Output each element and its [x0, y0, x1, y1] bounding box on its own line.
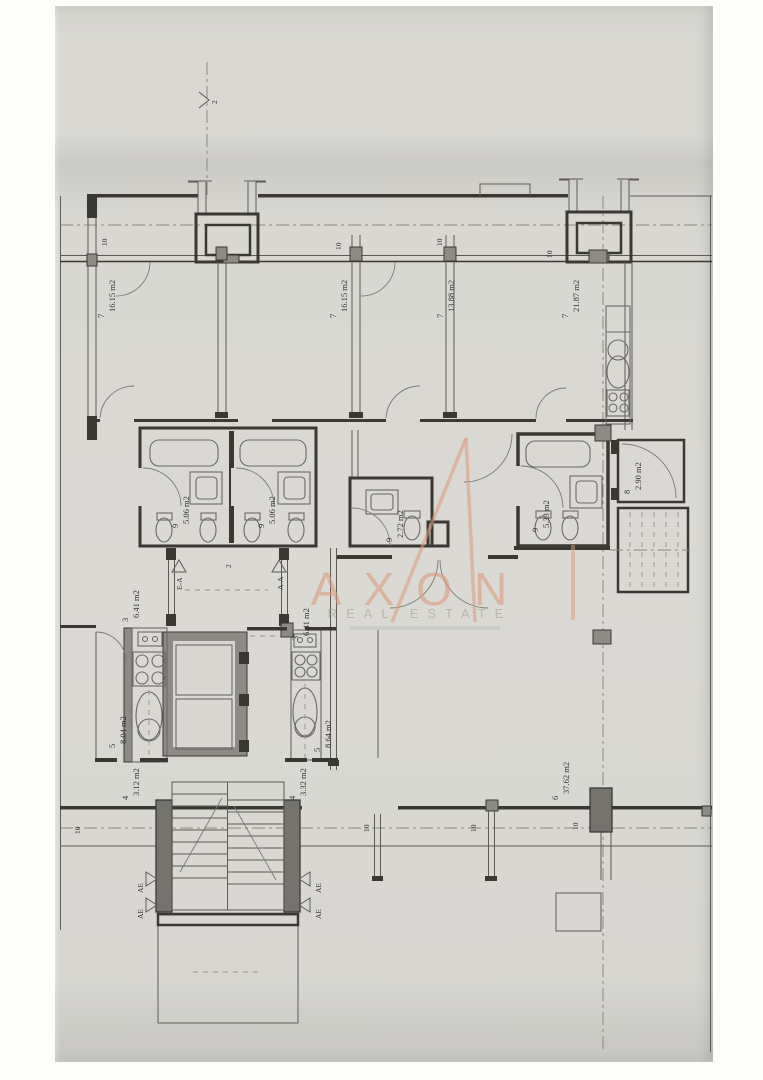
svg-text:9: 9 — [530, 528, 540, 532]
svg-text:9: 9 — [170, 524, 180, 528]
bathroom-right — [514, 425, 611, 550]
svg-text:3.32 m2: 3.32 m2 — [298, 768, 308, 796]
balcony-label-10: 10 — [73, 826, 82, 834]
scanned-floor-plan-sheet: 2 — [0, 0, 763, 1080]
balcony-label-10: 10 — [100, 238, 109, 246]
corridor-number: 2 — [224, 564, 233, 568]
svg-text:8: 8 — [622, 490, 632, 494]
svg-text:13.88 m2: 13.88 m2 — [446, 280, 456, 312]
svg-text:5.33 m2: 5.33 m2 — [541, 500, 551, 528]
room-label-bed3: 713.88 m2 — [435, 280, 456, 318]
svg-text:6.41 m2: 6.41 m2 — [301, 608, 311, 636]
section-marker-triangle — [272, 560, 286, 572]
balcony-label-10: 10 — [571, 822, 580, 830]
entrance-corridor: E-A A-A 2 — [166, 548, 300, 636]
room-label-bath1: 95.06 m2 — [170, 496, 191, 528]
svg-text:9: 9 — [384, 538, 394, 542]
svg-text:9: 9 — [256, 524, 266, 528]
washbasin-icon — [190, 472, 222, 504]
room-label-living: 637.62 m2 — [550, 762, 571, 800]
svg-text:6: 6 — [550, 796, 560, 800]
elevator-shaft — [163, 632, 249, 756]
svg-text:6.41 m2: 6.41 m2 — [131, 590, 141, 618]
room-label-bed2: 716.15 m2 — [328, 280, 349, 318]
bathtub-icon — [240, 440, 306, 466]
bidet-icon — [200, 513, 216, 542]
kitchenette-right-room — [606, 306, 630, 424]
section-label-aa: A-A — [276, 576, 285, 590]
bathrooms-left — [138, 428, 316, 546]
axis-label-2: 2 — [210, 100, 219, 104]
bottom-wall-stubs — [372, 788, 612, 881]
svg-text:3: 3 — [120, 618, 130, 622]
room-label-kitchen1: 58.04 m2 — [107, 716, 128, 748]
section-label-ae: AE — [136, 883, 145, 893]
bidet-icon — [288, 513, 304, 542]
svg-text:8.04 m2: 8.04 m2 — [118, 716, 128, 744]
room-label-wc: 92.72 m2 — [384, 510, 405, 542]
svg-text:3.12 m2: 3.12 m2 — [131, 768, 141, 796]
room-label-hall1: 36.41 m2 — [120, 590, 141, 622]
svg-text:5.06 m2: 5.06 m2 — [267, 496, 277, 524]
staircase — [156, 782, 300, 912]
balcony-label-10: 10 — [469, 824, 478, 832]
balcony-label-10: 10 — [435, 238, 444, 246]
floor-plan-drawing: 2 — [0, 0, 763, 1080]
room-label-bath3: 95.33 m2 — [530, 500, 551, 532]
svg-text:16.15 m2: 16.15 m2 — [339, 280, 349, 312]
bedroom-walls — [88, 235, 633, 430]
section-label-ea: E-A — [175, 577, 184, 590]
room-label-bed1: 716.15 m2 — [96, 280, 117, 318]
svg-text:4: 4 — [287, 795, 297, 800]
kitchen-left — [96, 628, 167, 762]
section-label-ae: AE — [314, 883, 323, 893]
washbasin-icon — [278, 472, 310, 504]
svg-text:5.06 m2: 5.06 m2 — [181, 496, 191, 524]
svg-text:7: 7 — [560, 314, 570, 318]
exterior-pad — [556, 893, 601, 931]
svg-text:37.62 m2: 37.62 m2 — [561, 762, 571, 794]
balcony-label-10: 10 — [362, 824, 371, 832]
room-label-bed4: 721.87 m2 — [560, 280, 581, 318]
svg-text:21.87 m2: 21.87 m2 — [571, 280, 581, 312]
svg-text:7: 7 — [328, 314, 338, 318]
svg-text:16.15 m2: 16.15 m2 — [107, 280, 117, 312]
section-label-ae: AE — [314, 909, 323, 919]
watermark-subtitle: REAL ESTATE — [328, 606, 513, 621]
svg-text:2.90 m2: 2.90 m2 — [633, 462, 643, 490]
watermark-smallprint — [350, 626, 500, 630]
svg-text:8.64 m2: 8.64 m2 — [323, 720, 333, 748]
svg-text:7: 7 — [96, 314, 106, 318]
svg-text:5: 5 — [107, 744, 117, 748]
svg-text:7: 7 — [435, 314, 445, 318]
balcony-label-10: 10 — [545, 250, 554, 258]
section-label-ae: AE — [136, 909, 145, 919]
svg-text:4: 4 — [120, 795, 130, 800]
room-label-balc1: 43.12 m2 — [120, 768, 141, 800]
room-label-closet: 82.90 m2 — [622, 462, 643, 494]
svg-text:3: 3 — [290, 636, 300, 640]
svg-text:5: 5 — [312, 748, 322, 752]
room-label-balc2: 43.32 m2 — [287, 768, 308, 800]
entrance-landing — [158, 914, 298, 1023]
svg-text:2.72 m2: 2.72 m2 — [395, 510, 405, 538]
balcony-label-10: 10 — [334, 242, 343, 250]
bathtub-icon — [150, 440, 218, 466]
